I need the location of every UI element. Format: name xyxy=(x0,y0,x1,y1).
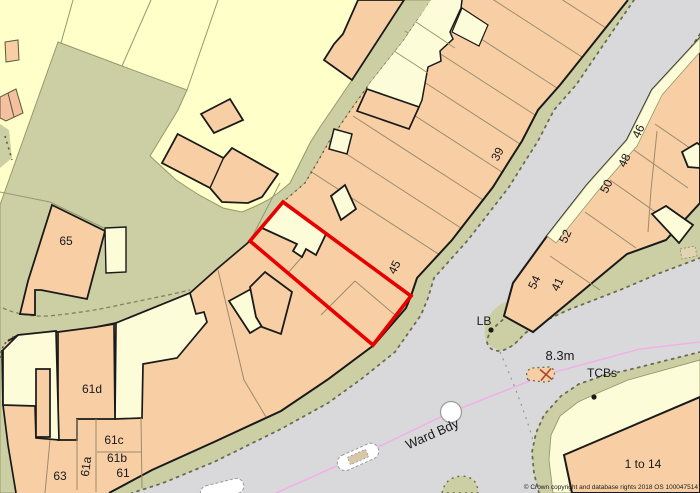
svg-text:61b: 61b xyxy=(107,451,127,465)
svg-text:61: 61 xyxy=(116,466,130,480)
svg-text:LB: LB xyxy=(477,314,492,328)
svg-text:TCBs: TCBs xyxy=(587,366,617,380)
svg-text:© Crown copyright and database: © Crown copyright and database rights 20… xyxy=(524,483,699,491)
svg-text:61c: 61c xyxy=(104,433,123,447)
svg-text:61a: 61a xyxy=(78,455,94,477)
svg-text:61d: 61d xyxy=(82,382,102,396)
svg-text:1 to 14: 1 to 14 xyxy=(625,457,662,471)
svg-text:8.3m: 8.3m xyxy=(546,348,575,363)
svg-text:65: 65 xyxy=(59,234,73,248)
svg-text:63: 63 xyxy=(53,469,67,483)
